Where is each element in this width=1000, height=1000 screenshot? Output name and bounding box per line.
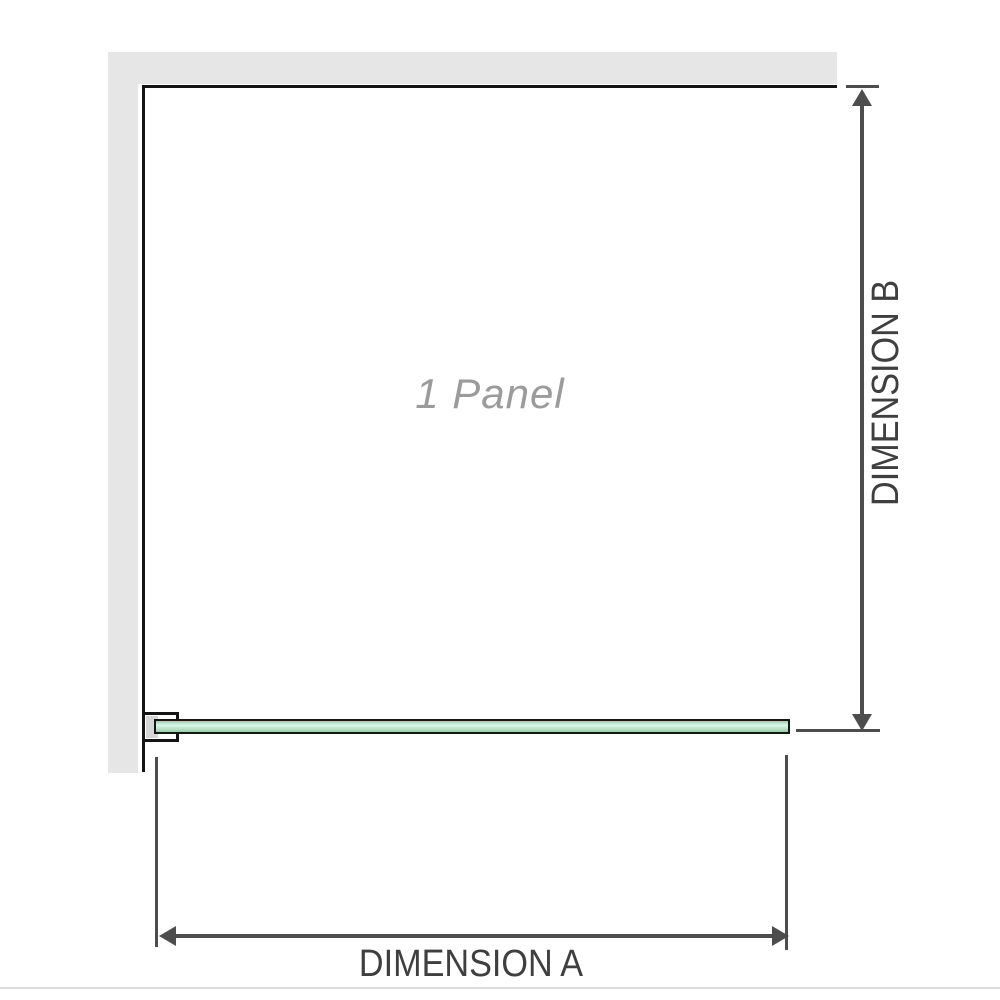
shower-panel-diagram: 1 Panel DIMENSION B DIMENSION A xyxy=(0,0,1000,1000)
dimension-b-top-tick xyxy=(846,85,879,88)
panel-count-label: 1 Panel xyxy=(143,370,837,418)
wall-left-bar xyxy=(108,52,138,773)
dimension-a-arrowhead-left xyxy=(159,926,176,946)
glass-panel-bar xyxy=(154,719,790,734)
dimension-b-arrowhead-down xyxy=(852,714,872,731)
dimension-b-arrowhead-up xyxy=(852,89,872,106)
panel-outline-left-edge xyxy=(142,85,145,772)
panel-outline-top-edge xyxy=(142,85,837,88)
dimension-a-right-extension-line xyxy=(785,755,788,950)
dimension-a-label: DIMENSION A xyxy=(291,943,651,986)
dimension-a-arrowhead-right xyxy=(772,926,789,946)
dimension-b-label: DIMENSION B xyxy=(866,326,906,506)
dimension-a-line xyxy=(163,934,784,938)
dimension-b-line xyxy=(860,92,864,722)
dimension-a-left-extension-line xyxy=(155,757,158,947)
bottom-divider-line xyxy=(0,987,1000,989)
wall-top-bar xyxy=(108,52,837,84)
